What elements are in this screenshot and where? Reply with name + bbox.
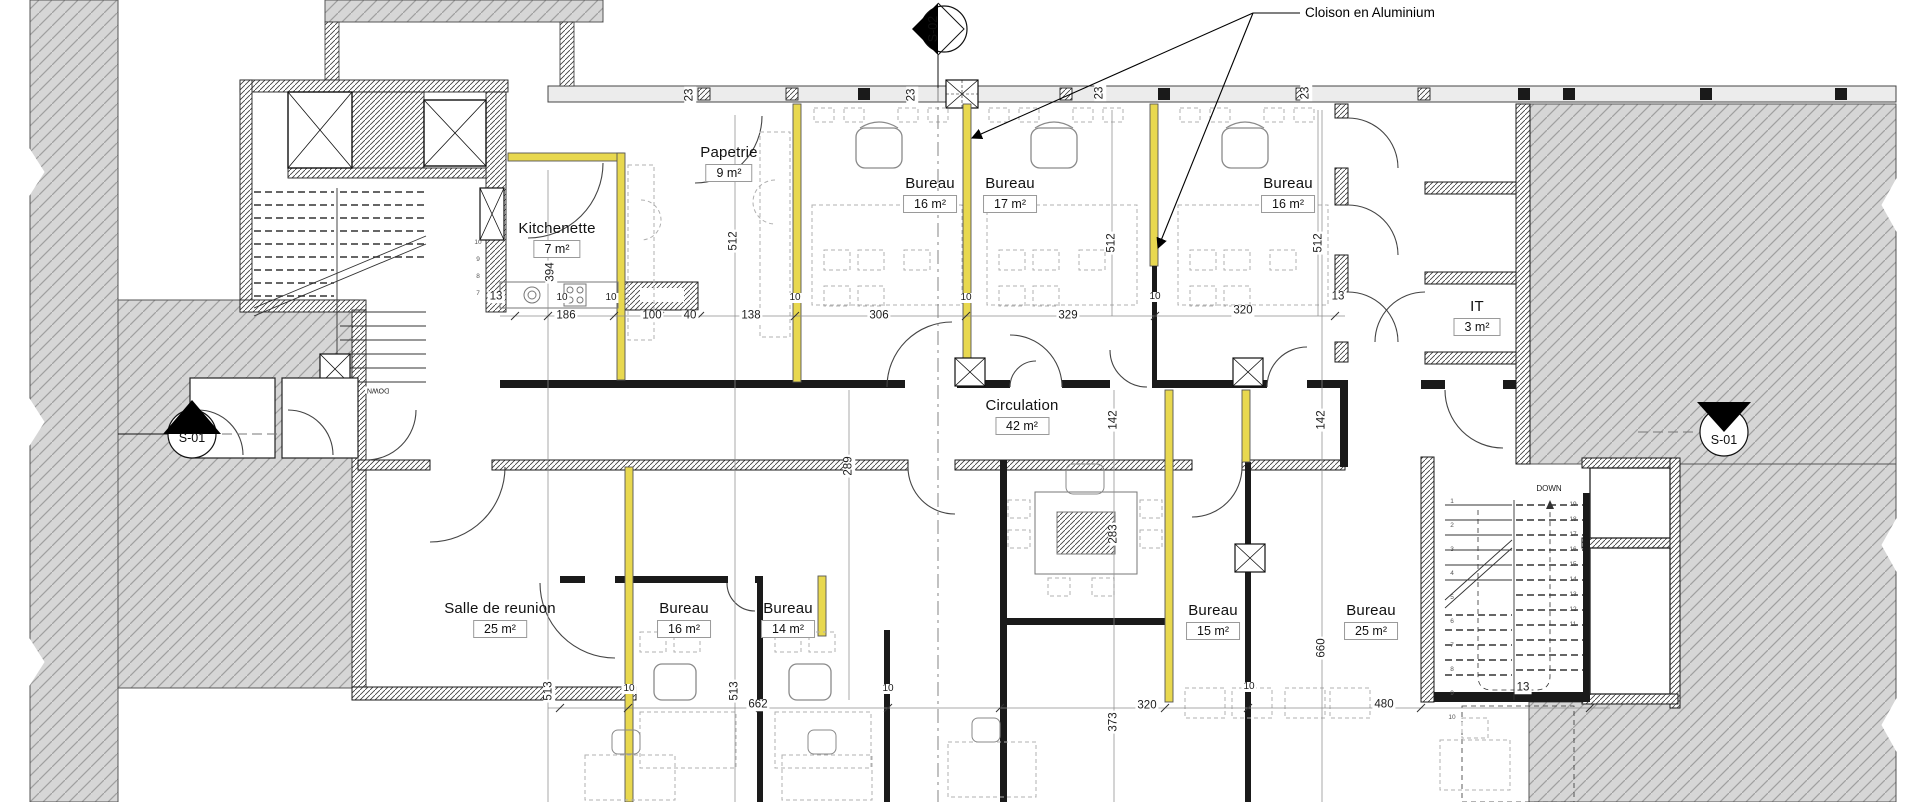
room-area-badge: 14 m² (761, 620, 815, 638)
partition-bureau-ab (963, 104, 971, 382)
room-label-bureau-a: Bureau 16 m² (903, 175, 957, 213)
room-area-badge: 16 m² (1261, 195, 1315, 213)
room-label-papeterie: Papetrie 9 m² (700, 144, 757, 182)
shaft-2 (424, 100, 486, 166)
room-label-kitchenette: Kitchenette 7 m² (518, 220, 595, 258)
elevator-shaft (288, 92, 352, 168)
stair-tread-number: 8 (476, 274, 480, 281)
stair-tread-number: 8 (1450, 667, 1454, 674)
dimension-label: 10 (621, 684, 636, 694)
room-area-badge: 25 m² (1344, 622, 1398, 640)
room-area-badge: 42 m² (995, 417, 1049, 435)
room-area-badge: 17 m² (983, 195, 1037, 213)
dimension-label: 660 (1316, 636, 1328, 659)
dimension-label: 40 (682, 310, 699, 322)
partition-callout-label: Cloison en Aluminium (1305, 5, 1435, 20)
stair-tread-number: 9 (1450, 691, 1454, 698)
dimension-label: 512 (728, 229, 740, 252)
partition-bureau-bc (1150, 104, 1158, 266)
dimension-label: 13 (1330, 291, 1347, 303)
room-name: Papetrie (700, 144, 757, 161)
stair-tread-number: 14 (1569, 577, 1576, 584)
dimension-label: 10 (554, 293, 569, 303)
dimension-label: 10 (603, 293, 618, 303)
dimension-label: 10 (880, 684, 895, 694)
room-name: Bureau (1186, 602, 1240, 619)
dimension-label: 10 (1241, 682, 1256, 692)
stair-tread-number: 15 (1569, 562, 1576, 569)
dimension-label: 320 (1135, 700, 1158, 712)
dimension-label: 10 (1147, 292, 1162, 302)
floor-plan-svg (0, 0, 1920, 802)
stair-tread-number: 9 (476, 257, 480, 264)
column-top (946, 80, 978, 108)
room-label-bureau-g: Bureau 25 m² (1344, 602, 1398, 640)
dimension-label: 289 (843, 454, 855, 477)
dimension-label: 186 (554, 310, 577, 322)
stair-tread-number: 11 (1570, 622, 1577, 629)
dimension-label: DOWN (365, 387, 391, 394)
partition-kitchenette-right (617, 153, 625, 380)
room-label-bureau-c: Bureau 16 m² (1261, 175, 1315, 213)
dimension-label: 10 (787, 293, 802, 303)
room-label-salle: Salle de reunion 25 m² (444, 600, 556, 638)
dimension-label: 662 (746, 699, 769, 711)
dimension-label: DOWN (1534, 485, 1563, 493)
dimension-label: 142 (1316, 408, 1328, 431)
dimension-label: 142 (1108, 408, 1120, 431)
dimension-label: 306 (867, 310, 890, 322)
dimension-label: 23 (906, 87, 918, 104)
stair-tread-number: 6 (1450, 619, 1454, 626)
stair-tread-number: 17 (1569, 532, 1576, 539)
partition-lower-2 (818, 576, 826, 636)
stair-tread-number: 19 (1569, 502, 1576, 509)
partition-bc-black-extension (1152, 266, 1157, 382)
partition-papeterie-right (793, 104, 801, 382)
room-area-badge: 9 m² (705, 164, 752, 182)
dimension-label: 320 (1231, 305, 1254, 317)
room-label-it: IT 3 m² (1454, 298, 1501, 336)
stair-tread-number: 18 (1569, 517, 1576, 524)
section-marker-top-label: S-02 (926, 16, 940, 42)
dimension-label: 513 (543, 679, 555, 702)
stair-tread-number: 10 (474, 240, 481, 247)
room-name: Bureau (1344, 602, 1398, 619)
room-area-badge: 3 m² (1454, 318, 1501, 336)
dimension-label: 138 (739, 310, 762, 322)
room-name: Bureau (761, 600, 815, 617)
stair-tread-number: 2 (1450, 523, 1454, 530)
partition-lower-4 (1242, 390, 1250, 462)
left-small-rooms (190, 378, 358, 458)
dimension-label: 373 (1108, 710, 1120, 733)
dimension-label: 329 (1056, 310, 1079, 322)
section-marker-left-label: S-01 (179, 431, 205, 445)
stair-tread-number: 10 (1448, 715, 1455, 722)
stair-tread-number: 1 (1450, 499, 1454, 506)
partition-lower-3 (1165, 390, 1173, 702)
room-label-circulation: Circulation 42 m² (985, 397, 1058, 435)
dimension-label: 100 (640, 310, 663, 322)
stair-tread-number: 16 (1569, 547, 1576, 554)
right-rooms (1590, 468, 1670, 694)
room-label-bureau-f: Bureau 15 m² (1186, 602, 1240, 640)
floor-plan-canvas: Cloison en Aluminium S-02 S-01 S-01 Pape… (0, 0, 1920, 802)
partition-lower-1 (625, 467, 633, 802)
room-area-badge: 7 m² (533, 240, 580, 258)
stair-tread-number: 3 (1450, 547, 1454, 554)
dimension-label: 23 (684, 87, 696, 104)
stair-tread-number: 13 (1569, 592, 1576, 599)
room-label-bureau-e: Bureau 14 m² (761, 600, 815, 638)
dimension-label: 23 (1300, 85, 1312, 102)
room-name: Bureau (1261, 175, 1315, 192)
top-exterior-wall (325, 22, 1896, 108)
stair-tread-number: 7 (476, 291, 480, 298)
dimension-label: 13 (488, 291, 505, 303)
room-area-badge: 15 m² (1186, 622, 1240, 640)
dimension-label: 10 (958, 293, 973, 303)
section-marker-right-label: S-01 (1711, 433, 1737, 447)
dimension-label: 480 (1372, 699, 1395, 711)
room-name: Bureau (657, 600, 711, 617)
room-area-badge: 16 m² (903, 195, 957, 213)
dimension-label: 23 (1094, 85, 1106, 102)
partition-kitchenette-top (508, 153, 624, 161)
dimension-label: 13 (1515, 682, 1532, 694)
stair-tread-number: 7 (1450, 643, 1454, 650)
dimension-label: 283 (1108, 522, 1120, 545)
room-name: IT (1454, 298, 1501, 315)
dimension-label: 513 (729, 679, 741, 702)
poche-top-strip (325, 0, 603, 22)
room-label-bureau-b: Bureau 17 m² (983, 175, 1037, 213)
room-name: Circulation (985, 397, 1058, 414)
dimension-label: 512 (1313, 231, 1325, 254)
stair-tread-number: 12 (1569, 607, 1576, 614)
stair-tread-number: 5 (1450, 595, 1454, 602)
room-area-badge: 16 m² (657, 620, 711, 638)
room-label-bureau-d: Bureau 16 m² (657, 600, 711, 638)
dimension-label: 512 (1106, 231, 1118, 254)
dimension-label: 394 (545, 260, 557, 283)
room-name: Kitchenette (518, 220, 595, 237)
room-name: Bureau (903, 175, 957, 192)
room-name: Bureau (983, 175, 1037, 192)
room-area-badge: 25 m² (473, 620, 527, 638)
poche-left-band (30, 0, 118, 802)
room-name: Salle de reunion (444, 600, 556, 617)
stair-tread-number: 4 (1450, 571, 1454, 578)
